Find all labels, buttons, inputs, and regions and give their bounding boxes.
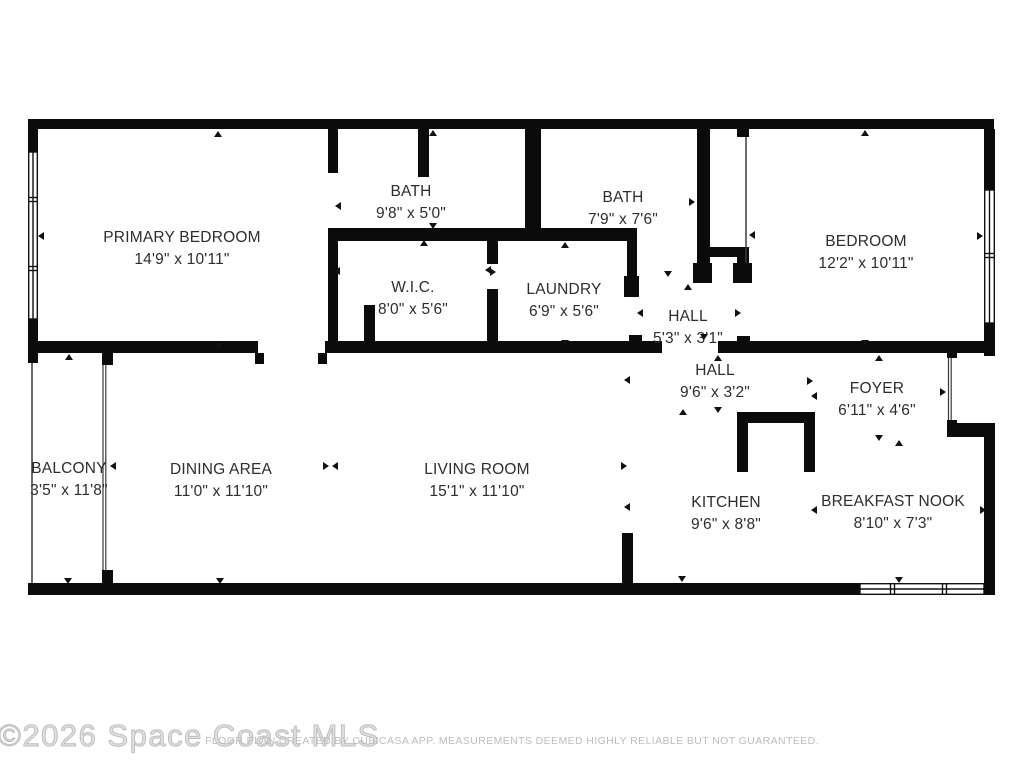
room-dimensions: 12'2" x 10'11" bbox=[818, 253, 913, 275]
up-arrow-marker bbox=[420, 240, 428, 246]
left-arrow-marker bbox=[335, 202, 341, 210]
disclaimer-text: FLOOR PLAN CREATED BY CUBICASA APP. MEAS… bbox=[205, 735, 819, 747]
up-arrow-marker bbox=[714, 355, 722, 361]
up-arrow-marker bbox=[65, 354, 73, 360]
left-arrow-marker bbox=[811, 392, 817, 400]
up-arrow-marker bbox=[861, 130, 869, 136]
room-name: DINING AREA bbox=[170, 459, 272, 481]
room-dimensions: 11'0" x 11'10" bbox=[170, 481, 272, 503]
room-dimensions: 5'3" x 3'1" bbox=[653, 328, 723, 350]
room-dimensions: 9'8" x 5'0" bbox=[376, 203, 446, 225]
room-dimensions: 7'9" x 7'6" bbox=[588, 209, 658, 231]
up-arrow-marker bbox=[429, 130, 437, 136]
room-label-hall-lower: HALL 9'6" x 3'2" bbox=[680, 360, 750, 403]
right-arrow-marker bbox=[980, 506, 986, 514]
room-label-wic: W.I.C. 8'0" x 5'6" bbox=[378, 277, 448, 320]
room-label-bath-1: BATH 9'8" x 5'0" bbox=[376, 181, 446, 224]
up-arrow-marker bbox=[895, 440, 903, 446]
right-arrow-marker bbox=[689, 198, 695, 206]
down-arrow-marker bbox=[875, 435, 883, 441]
room-name: BALCONY bbox=[30, 458, 108, 480]
room-label-balcony: BALCONY 3'5" x 11'8" bbox=[30, 458, 108, 501]
room-label-kitchen: KITCHEN 9'6" x 8'8" bbox=[691, 492, 761, 535]
up-arrow-marker bbox=[684, 284, 692, 290]
down-arrow-marker bbox=[561, 340, 569, 346]
room-label-primary-bedroom: PRIMARY BEDROOM 14'9" x 10'11" bbox=[103, 227, 260, 270]
down-arrow-marker bbox=[216, 578, 224, 584]
left-arrow-marker bbox=[749, 231, 755, 239]
room-dimensions: 6'9" x 5'6" bbox=[526, 301, 601, 323]
window-bottom bbox=[860, 583, 984, 595]
room-label-living-room: LIVING ROOM 15'1" x 11'10" bbox=[424, 459, 530, 502]
right-arrow-marker bbox=[940, 388, 946, 396]
room-name: BATH bbox=[588, 187, 658, 209]
room-label-laundry: LAUNDRY 6'9" x 5'6" bbox=[526, 279, 601, 322]
room-dimensions: 6'11" x 4'6" bbox=[838, 400, 916, 422]
up-arrow-marker bbox=[875, 355, 883, 361]
down-arrow-marker bbox=[895, 577, 903, 583]
right-arrow-marker bbox=[807, 377, 813, 385]
room-dimensions: 8'0" x 5'6" bbox=[378, 299, 448, 321]
entry-door bbox=[949, 358, 952, 420]
left-arrow-marker bbox=[332, 462, 338, 470]
room-label-hall-upper: HALL 5'3" x 3'1" bbox=[653, 306, 723, 349]
room-dimensions: 15'1" x 11'10" bbox=[424, 481, 530, 503]
room-dimensions: 3'5" x 11'8" bbox=[30, 480, 108, 502]
room-name: BEDROOM bbox=[818, 231, 913, 253]
up-arrow-marker bbox=[214, 131, 222, 137]
room-label-bedroom: BEDROOM 12'2" x 10'11" bbox=[818, 231, 913, 274]
left-arrow-marker bbox=[110, 462, 116, 470]
down-arrow-marker bbox=[64, 578, 72, 584]
left-arrow-marker bbox=[624, 376, 630, 384]
window-left bbox=[28, 152, 38, 319]
left-arrow-marker bbox=[811, 506, 817, 514]
room-label-bath-2: BATH 7'9" x 7'6" bbox=[588, 187, 658, 230]
up-arrow-marker bbox=[679, 409, 687, 415]
down-arrow-marker bbox=[700, 334, 708, 340]
left-arrow-marker bbox=[334, 267, 340, 275]
window-right bbox=[984, 190, 995, 323]
room-name: KITCHEN bbox=[691, 492, 761, 514]
down-arrow-marker bbox=[714, 407, 722, 413]
right-arrow-marker bbox=[490, 268, 496, 276]
left-arrow-marker bbox=[637, 309, 643, 317]
room-label-dining-area: DINING AREA 11'0" x 11'10" bbox=[170, 459, 272, 502]
room-name: PRIMARY BEDROOM bbox=[103, 227, 260, 249]
right-arrow-marker bbox=[735, 309, 741, 317]
room-dimensions: 8'10" x 7'3" bbox=[821, 513, 965, 535]
room-name: FOYER bbox=[838, 378, 916, 400]
right-arrow-marker bbox=[323, 462, 329, 470]
room-name: LAUNDRY bbox=[526, 279, 601, 301]
down-arrow-marker bbox=[664, 271, 672, 277]
room-label-foyer: FOYER 6'11" x 4'6" bbox=[838, 378, 916, 421]
room-name: LIVING ROOM bbox=[424, 459, 530, 481]
down-arrow-marker bbox=[429, 223, 437, 229]
down-arrow-marker bbox=[678, 576, 686, 582]
room-dimensions: 9'6" x 3'2" bbox=[680, 382, 750, 404]
room-name: BREAKFAST NOOK bbox=[821, 491, 965, 513]
down-arrow-marker bbox=[215, 343, 223, 349]
right-arrow-marker bbox=[977, 232, 983, 240]
floor-plan-page: PRIMARY BEDROOM 14'9" x 10'11" BATH 9'8"… bbox=[0, 0, 1024, 768]
room-name: HALL bbox=[653, 306, 723, 328]
up-arrow-marker bbox=[561, 242, 569, 248]
room-name: BATH bbox=[376, 181, 446, 203]
left-arrow-marker bbox=[624, 503, 630, 511]
room-label-breakfast-nook: BREAKFAST NOOK 8'10" x 7'3" bbox=[821, 491, 965, 534]
room-dimensions: 9'6" x 8'8" bbox=[691, 514, 761, 536]
down-arrow-marker bbox=[861, 340, 869, 346]
right-arrow-marker bbox=[621, 462, 627, 470]
room-name: W.I.C. bbox=[378, 277, 448, 299]
room-name: HALL bbox=[680, 360, 750, 382]
room-dimensions: 14'9" x 10'11" bbox=[103, 249, 260, 271]
left-arrow-marker bbox=[38, 232, 44, 240]
